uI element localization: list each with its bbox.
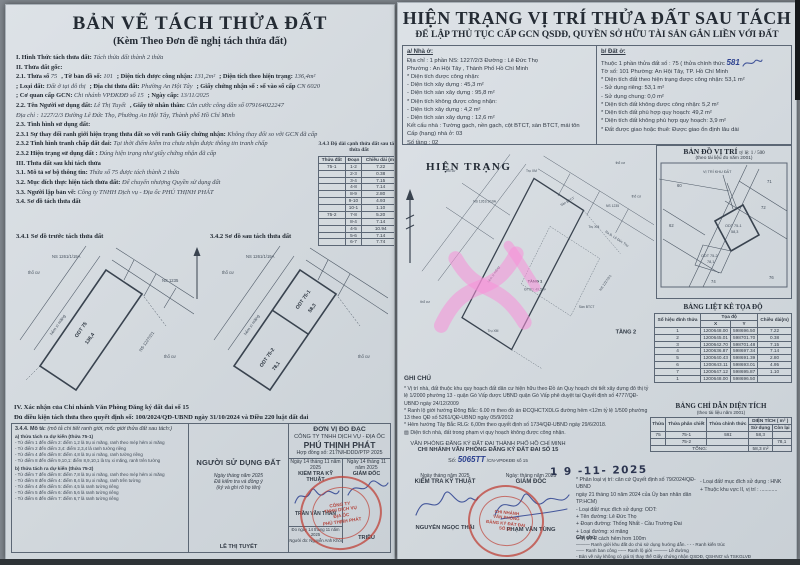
north-arrow-icon xyxy=(192,247,202,303)
section-4-title: IV. Xác nhận của Chi nhánh Văn Phòng Đăn… xyxy=(14,403,392,413)
house-info: a/ Nhà ở: Địa chỉ : 1 phần NS: 1227/2/3 … xyxy=(403,46,597,144)
svg-text:thổ cư: thổ cư xyxy=(164,354,176,359)
scan-edge-shadow-bottom xyxy=(0,559,800,565)
svg-text:78,1: 78,1 xyxy=(271,360,282,372)
svg-text:NS 1235: NS 1235 xyxy=(162,278,179,283)
handwritten-doc-number: 5065TT xyxy=(458,455,486,464)
diagram-after-split: 3.4.2 Sơ đồ sau tách thửa đất thổ cư thổ… xyxy=(210,233,392,392)
svg-text:Trụ XM: Trụ XM xyxy=(526,169,537,173)
coordinate-table-title: BẢNG LIỆT KÊ TỌA ĐỘ xyxy=(654,303,792,311)
scanned-document: BẢN VẼ TÁCH THỬA ĐẤT (Kèm Theo Đơn đề ng… xyxy=(0,0,800,565)
legend-title: Ghi chú: xyxy=(576,535,792,542)
svg-text:ODT 75-1: ODT 75-1 xyxy=(725,224,742,228)
desc-note: (mô tả chi tiết ranh giới, mốc giới thửa… xyxy=(47,426,172,432)
svg-text:TẦNG 2: TẦNG 2 xyxy=(616,329,637,336)
svg-text:NS 1227/2/1: NS 1227/2/1 xyxy=(138,330,156,352)
svg-text:thổ cư: thổ cư xyxy=(28,270,40,275)
edge-length-table: 3.4.3 Độ dài cạnh thửa đất sau tách thửa… xyxy=(318,141,395,246)
legend-block: Ghi chú: ——— Ranh giới khu đất do chủ sử… xyxy=(576,535,792,560)
right-page-subtitle: ĐỂ LẬP THỦ TỤC CẤP GCN QSDĐ, QUYỀN SỞ HỮ… xyxy=(398,30,796,40)
svg-text:60: 60 xyxy=(677,183,682,188)
page-right-hien-trang: HIỆN TRẠNG VỊ TRÍ THỬA ĐẤT SAU TÁCH ĐỂ L… xyxy=(397,2,797,560)
scan-edge-shadow-right xyxy=(795,0,800,100)
diagram-before-split: 3.4.1 Sơ đồ trước tách thửa đất thổ cư t… xyxy=(16,233,194,392)
location-map-svg: 60 62 71 72 74 76 VỊ TRÍ KHU ĐẤT ODT 75-… xyxy=(659,161,789,289)
house-header: a/ Nhà ở: xyxy=(407,48,592,57)
handwritten-paraph xyxy=(741,58,763,68)
user-note2: (ký và ghi rõ họ tên) xyxy=(189,485,288,491)
section-4-line: Đủ điều kiện tách thửa theo quyết định s… xyxy=(14,413,392,423)
svg-text:71: 71 xyxy=(767,179,772,184)
notes-lines: * Vị trí nhà, đất thuộc khu quy hoạch đấ… xyxy=(404,386,650,437)
svg-text:Ra Đ. Lê Đức Thọ: Ra Đ. Lê Đức Thọ xyxy=(604,230,629,248)
unit-header: ĐƠN VỊ ĐO ĐẠC xyxy=(289,426,390,433)
pink-highlighter-mark xyxy=(441,246,535,326)
land-info: b/ Đất ở: Thuộc 1 phần thửa đất số : 75 … xyxy=(597,46,793,144)
diagram-after-svg: thổ cư thổ cư NS 1261/1/19A hẻm xi măng … xyxy=(210,240,388,392)
svg-text:58,3: 58,3 xyxy=(731,230,738,234)
right-page-title: HIỆN TRẠNG VỊ TRÍ THỬA ĐẤT SAU TÁCH xyxy=(398,8,796,29)
edge-length-table-title: 3.4.3 Độ dài cạnh thửa đất sau tách thửa… xyxy=(318,141,395,154)
svg-text:136,4: 136,4 xyxy=(84,332,96,346)
svg-text:58,3: 58,3 xyxy=(307,302,318,314)
land-user-header: NGƯỜI SỬ DỤNG ĐẤT xyxy=(189,458,288,467)
svg-text:thổ cư: thổ cư xyxy=(632,195,642,199)
svg-text:74: 74 xyxy=(711,279,716,284)
gd-date: Ngày 14 tháng 11 năm 2025 xyxy=(343,459,390,471)
page-left-ban-ve-tach-thua: BẢN VẼ TÁCH THỬA ĐẤT (Kèm Theo Đơn đề ng… xyxy=(5,4,395,560)
land-header: b/ Đất ở: xyxy=(601,48,789,57)
left-page-subtitle: (Kèm Theo Đơn đề nghị tách thửa đất) xyxy=(6,36,394,47)
contract-number: Hợp đồng số: 217N/HDDD/PTP 2025 xyxy=(289,450,390,459)
diagram-before-svg: thổ cư thổ cư NS 1261/1/19A NS 1235 NS 1… xyxy=(16,240,194,392)
classification-block: * Phân loại vị trí: căn cứ Quyết định số… xyxy=(576,477,698,543)
area-table-title: BẢNG CHỈ DẪN DIỆN TÍCH xyxy=(650,402,792,410)
svg-text:thổ cư: thổ cư xyxy=(420,300,430,304)
svg-text:thổ cư: thổ cư xyxy=(358,354,370,359)
svg-text:62: 62 xyxy=(669,223,674,228)
col-doan: Đoạn xyxy=(345,156,362,163)
svg-text:Trụ XM: Trụ XM xyxy=(488,329,499,333)
desc-label: 3.4.4. Mô tả: xyxy=(15,426,46,432)
notes-block: GHI CHÚ * Vị trí nhà, đất thuộc khu quy … xyxy=(404,375,650,437)
svg-text:thổ cư: thổ cư xyxy=(446,169,456,173)
svg-text:VỊ TRÍ KHU ĐẤT: VỊ TRÍ KHU ĐẤT xyxy=(703,170,732,174)
area-table: BẢNG CHỈ DẪN DIỆN TÍCH (theo tài liệu nă… xyxy=(650,402,792,452)
kt-date: Ngày 14 tháng 11 năm 2025 xyxy=(289,459,342,471)
registry-office-block: VĂN PHÒNG ĐĂNG KÝ ĐẤT ĐAI THÀNH PHỐ HỒ C… xyxy=(402,441,574,557)
handwritten-official-parcel: 581 xyxy=(707,431,749,438)
section-4-confirmation: IV. Xác nhận của Chi nhánh Văn Phòng Đăn… xyxy=(14,403,392,422)
area-table-note: (theo tài liệu năm 2001) xyxy=(650,410,792,415)
legend-lines: ——— Ranh giới khu đất do chủ sử dụng hướ… xyxy=(576,542,792,560)
svg-text:ODT 75: ODT 75 xyxy=(74,321,89,339)
svg-text:Trụ XM: Trụ XM xyxy=(588,225,599,229)
svg-text:76: 76 xyxy=(769,275,774,280)
diagram-before-title: 3.4.1 Sơ đồ trước tách thửa đất xyxy=(16,233,194,240)
desc-a-lines: - Từ điểm 1 đến điểm 2: điểm 1,2 là trụ … xyxy=(15,440,185,464)
land-lines: * Diện tích đất theo hiện trạng được côn… xyxy=(601,76,789,134)
location-map-box: BẢN ĐỒ VỊ TRÍ tỷ lệ: 1 / 500 (theo tài l… xyxy=(656,145,792,299)
land-user-cell: NGƯỜI SỬ DỤNG ĐẤT Ngày tháng năm 2025 Đã… xyxy=(189,424,289,552)
office-line2: CHI NHÁNH VĂN PHÒNG ĐĂNG KÝ ĐẤT ĐAI SỐ 1… xyxy=(402,447,574,453)
classification-block-secondary: - Loại đất/ mục đích sử dụng : HNK+ Thuộ… xyxy=(700,479,794,494)
handwritten-parcel-number: 581 xyxy=(726,58,739,67)
svg-text:NS 1261/1/19A: NS 1261/1/19A xyxy=(52,254,81,259)
svg-text:ODT 75-2: ODT 75-2 xyxy=(701,254,718,258)
diagram-after-title: 3.4.2 Sơ đồ sau tách thửa đất xyxy=(210,233,392,240)
svg-text:thổ cư: thổ cư xyxy=(616,161,626,165)
house-land-info-box: a/ Nhà ở: Địa chỉ : 1 phần NS: 1227/2/3 … xyxy=(402,45,792,145)
left-signature-table: 3.4.4. Mô tả: (mô tả chi tiết ranh giới,… xyxy=(11,423,391,553)
description-cell: 3.4.4. Mô tả: (mô tả chi tiết ranh giới,… xyxy=(12,424,189,552)
user-name: LÊ THỊ TUYẾT xyxy=(189,544,288,550)
col-thua-dat: Thửa đất xyxy=(319,156,346,163)
svg-text:Sàn BTCT: Sàn BTCT xyxy=(560,196,576,207)
left-page-title: BẢN VẼ TÁCH THỬA ĐẤT xyxy=(6,13,394,35)
svg-text:NS 1227/2/1: NS 1227/2/1 xyxy=(598,274,612,292)
svg-text:NS 1261/1/19A: NS 1261/1/19A xyxy=(473,199,497,203)
svg-text:NS 1235: NS 1235 xyxy=(606,204,619,208)
svg-text:Sàn BTCT: Sàn BTCT xyxy=(579,305,595,309)
notes-title: GHI CHÚ xyxy=(404,375,650,384)
svg-text:NS 1261/1/19A: NS 1261/1/19A xyxy=(246,254,275,259)
current-state-plan-svg: thổ cư thổ cư thổ cư thổ cư NS 1261/1/19… xyxy=(414,151,654,377)
parcel-diagrams: 3.4.1 Sơ đồ trước tách thửa đất thổ cư t… xyxy=(14,233,394,401)
svg-text:thổ cư: thổ cư xyxy=(222,270,234,275)
coordinate-table: BẢNG LIỆT KÊ TỌA ĐỘ Số hiệu đỉnh thửa Tọ… xyxy=(654,303,792,383)
svg-text:78,1: 78,1 xyxy=(707,260,714,264)
company-line2: PHÚ THỊNH PHÁT xyxy=(289,440,390,450)
col-chieu-dai: Chiều dài (m) xyxy=(362,156,395,163)
desc-b-lines: - Từ điểm 7 đến điểm 8: điểm 7,8 là trụ … xyxy=(15,472,185,502)
house-lines: Địa chỉ : 1 phần NS: 1227/2/3 Đường : Lê… xyxy=(407,57,592,147)
svg-text:72: 72 xyxy=(761,205,766,210)
